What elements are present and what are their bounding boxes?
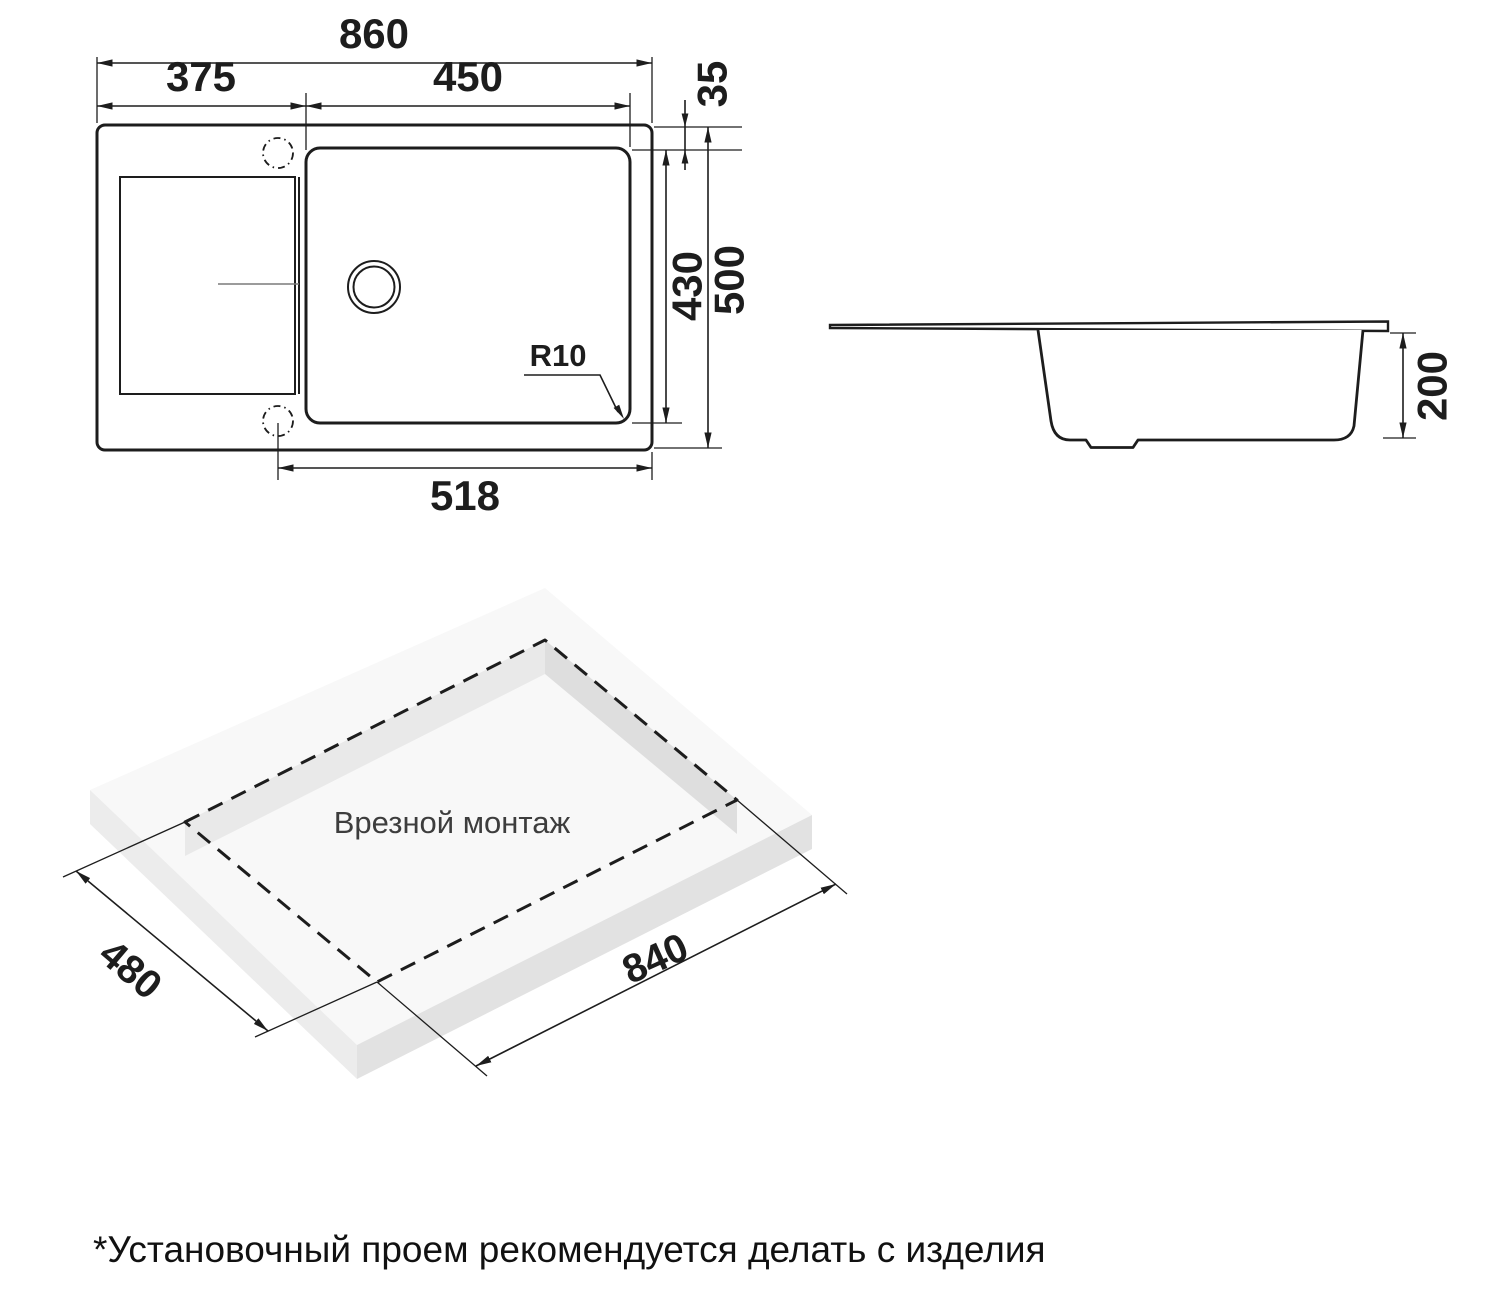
arrow-down bbox=[682, 114, 689, 128]
sink-dimension-drawing: R10 860 375 450 35 bbox=[0, 0, 1496, 1294]
sink-outer-body bbox=[97, 125, 652, 450]
dim-text-480: 480 bbox=[91, 931, 170, 1008]
dim-text-518: 518 bbox=[430, 472, 500, 519]
drain-outer-circle bbox=[348, 261, 400, 313]
dim-text-860: 860 bbox=[339, 10, 409, 57]
corner-radius-callout: R10 bbox=[524, 338, 624, 419]
footnote-text: *Установочный проем рекомендуется делать… bbox=[93, 1229, 1046, 1270]
dim-total-depth: 500 bbox=[706, 127, 753, 448]
side-bowl-profile bbox=[1038, 330, 1363, 448]
installation-caption: Врезной монтаж bbox=[334, 805, 571, 840]
dim-hole-to-edge: 518 bbox=[278, 423, 652, 519]
corner-radius-leader-line bbox=[524, 375, 618, 412]
dim-text-450: 450 bbox=[433, 53, 503, 100]
side-plate bbox=[830, 322, 1388, 332]
dim-text-500: 500 bbox=[706, 245, 753, 315]
arrow-up bbox=[682, 150, 689, 164]
dim-bowl-length: 430 bbox=[664, 150, 711, 423]
drainboard bbox=[120, 177, 295, 394]
dim-text-35: 35 bbox=[689, 61, 736, 108]
drain-inner-circle bbox=[354, 267, 395, 308]
dim-bowl-depth: 200 bbox=[1383, 333, 1456, 438]
technical-drawing-sheet: R10 860 375 450 35 bbox=[0, 0, 1496, 1294]
tap-hole-top bbox=[263, 138, 293, 168]
dim-text-200: 200 bbox=[1409, 351, 1456, 421]
bowl bbox=[306, 148, 630, 423]
side-view: 200 bbox=[830, 322, 1456, 448]
dim-left-section-and-bowl: 375 450 bbox=[97, 53, 630, 150]
installation-view: Врезной монтаж 480 840 bbox=[63, 588, 847, 1079]
top-view: R10 860 375 450 35 bbox=[97, 10, 753, 519]
dim-text-375: 375 bbox=[166, 53, 236, 100]
dim-text-430: 430 bbox=[664, 251, 711, 321]
corner-radius-label: R10 bbox=[530, 338, 587, 373]
